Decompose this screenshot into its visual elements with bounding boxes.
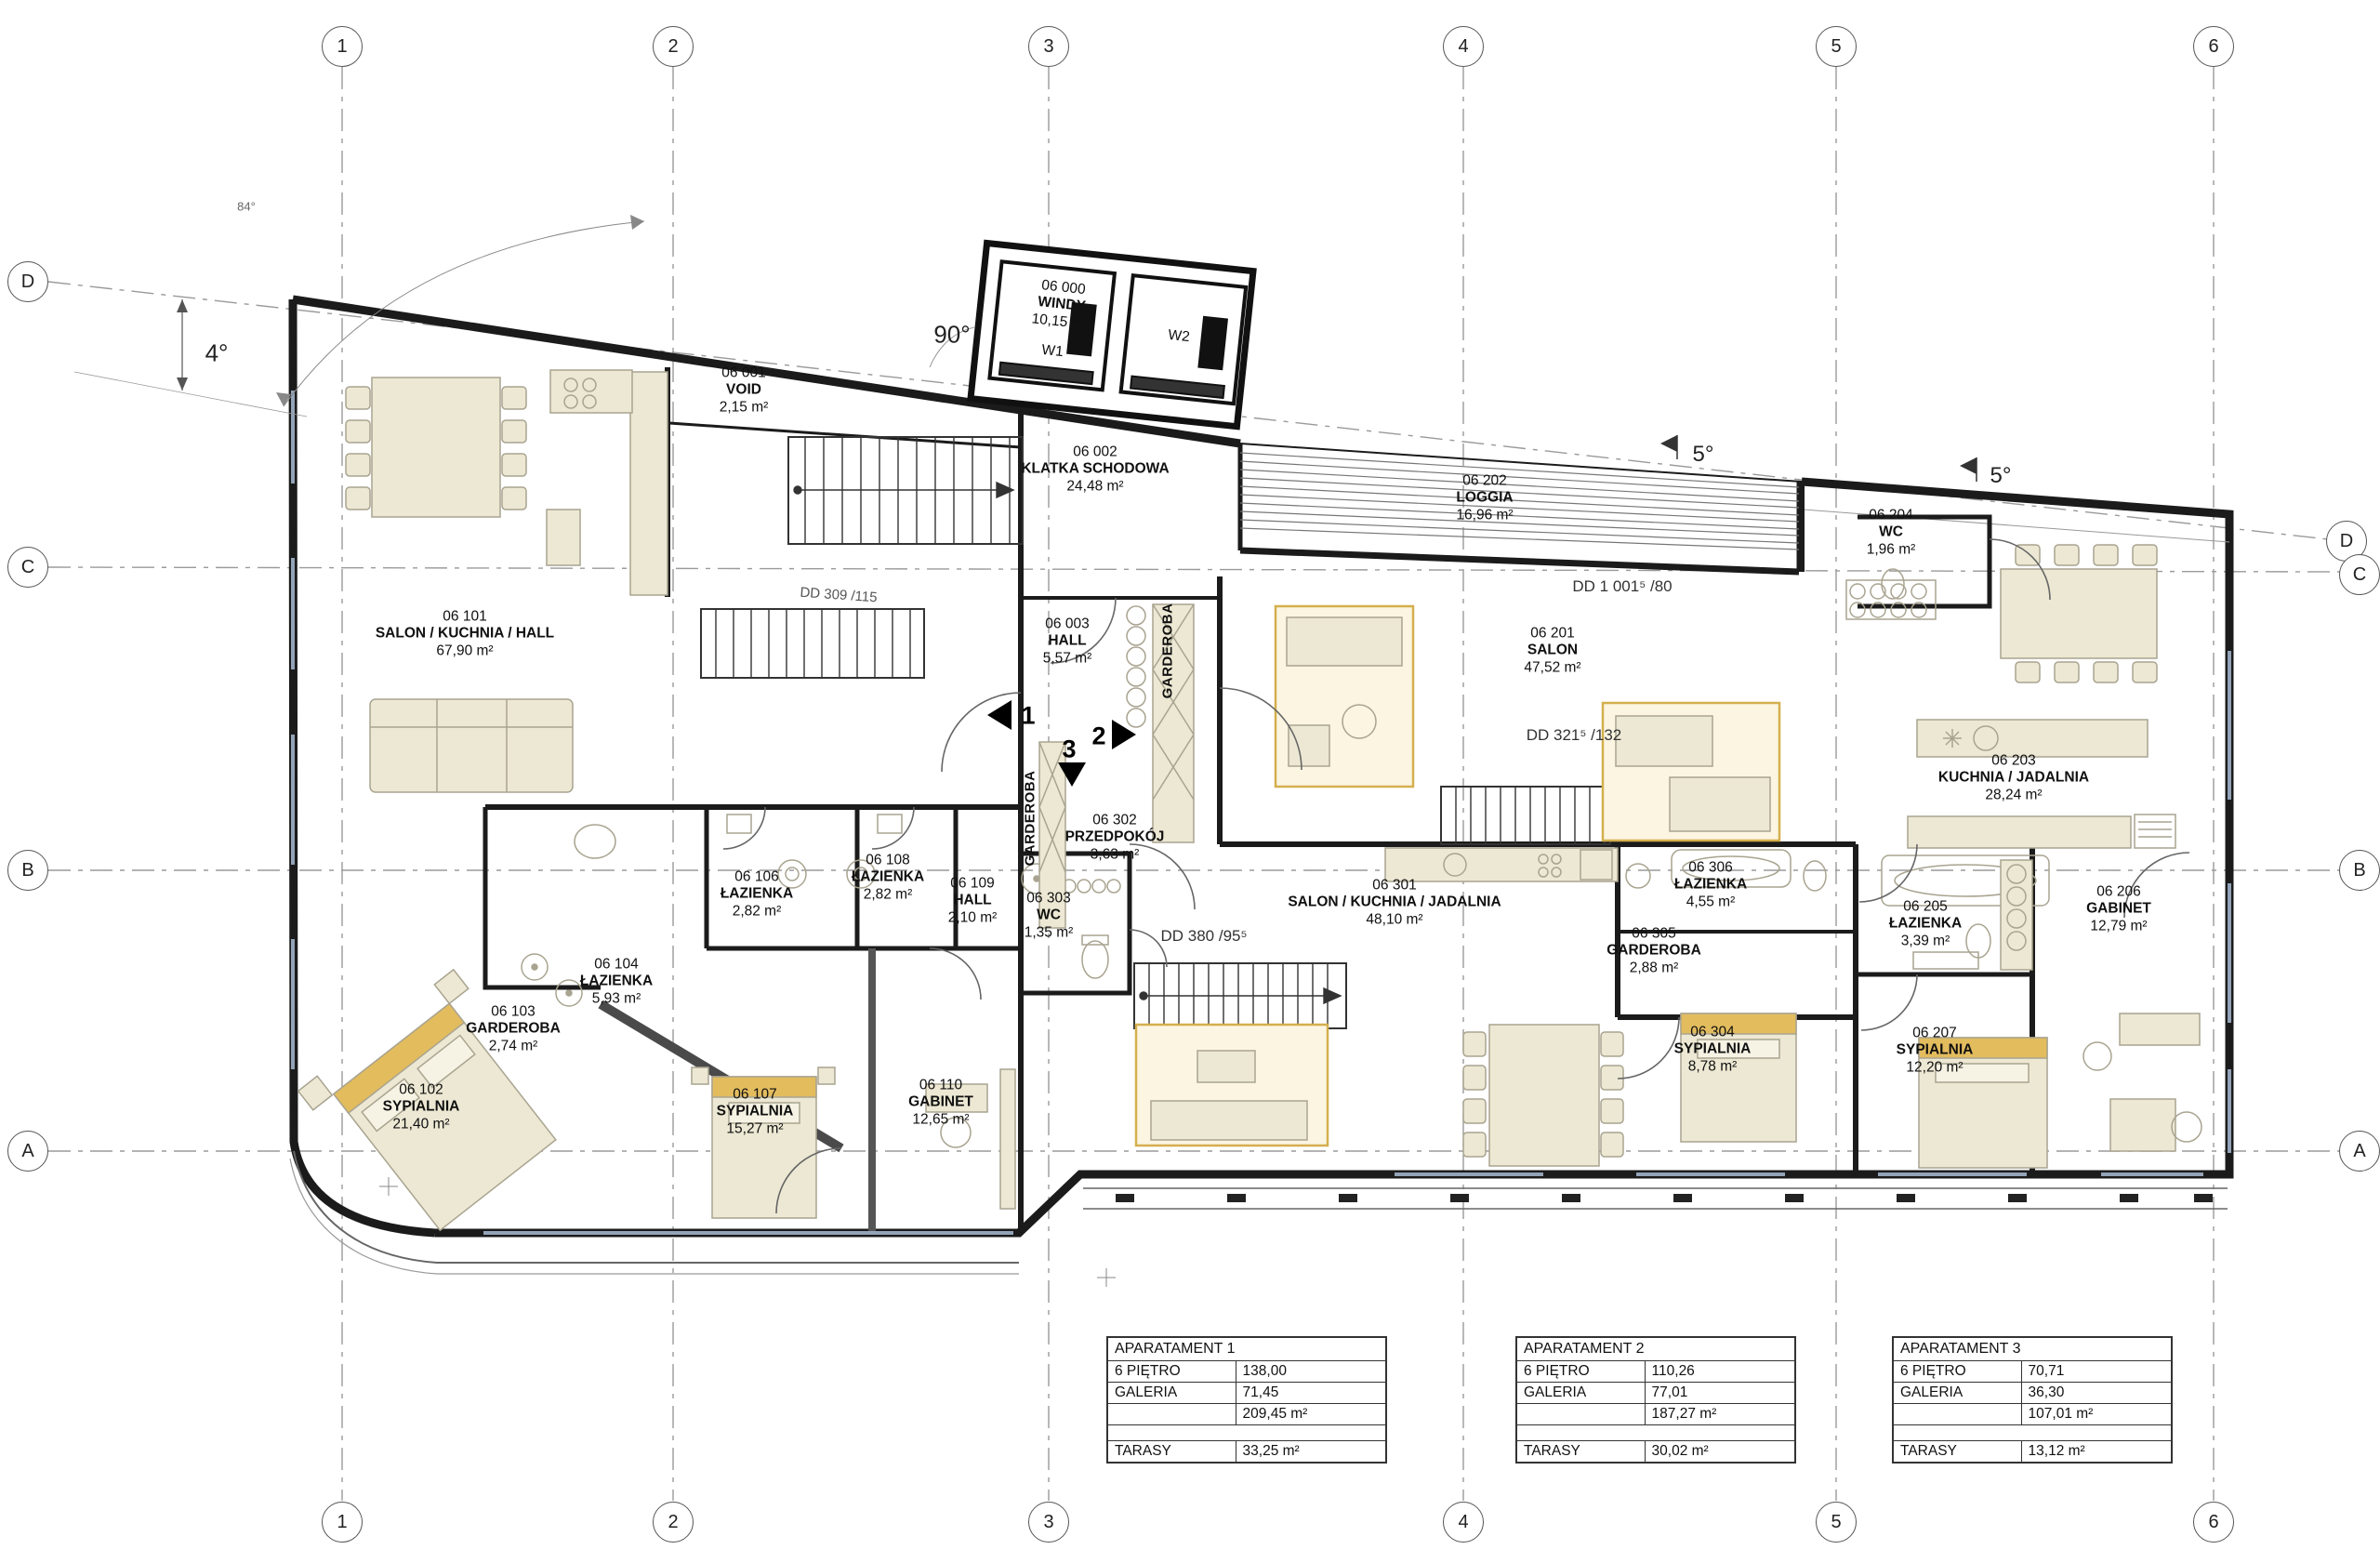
room-label-06-303: 06 303 WC 1,35 m² — [1025, 891, 1074, 942]
elevator-cab-w2-label: W2 — [1167, 327, 1190, 346]
apartment-table-3: APARATAMENT 3 6 PIĘTRO70,71 GALERIA36,30… — [1892, 1336, 2173, 1464]
room-number: 06 207 — [1897, 1026, 1974, 1042]
room-number: 06 104 — [580, 957, 653, 974]
room-label-06-205: 06 205 ŁAZIENKA 3,39 m² — [1889, 899, 1962, 950]
grid-bubble-col3-bottom: 3 — [1028, 1502, 1069, 1543]
room-name: SALON — [1524, 642, 1580, 659]
loggia-hatch — [1240, 453, 1799, 550]
room-area: 2,82 m² — [721, 903, 793, 920]
room-area: 4,55 m² — [1674, 894, 1747, 910]
grid-bubble-col2-bottom: 2 — [653, 1502, 694, 1543]
room-number: 06 001 — [720, 365, 769, 382]
table-cell: 6 PIĘTRO — [1894, 1361, 2022, 1383]
angle-5-label-b: 5° — [1990, 463, 2012, 489]
room-label-06-003: 06 003 HALL 5,57 m² — [1043, 616, 1092, 668]
section-arrow-down-icon — [1058, 762, 1086, 787]
room-number: 06 202 — [1456, 473, 1513, 490]
table-cell: GALERIA — [1108, 1383, 1236, 1404]
floor-plan-canvas: 06 001 VOID 2,15 m² 06 002 KLATKA SCHODO… — [0, 0, 2380, 1563]
room-label-06-001: 06 001 VOID 2,15 m² — [720, 365, 769, 417]
grid-bubble-col6-top: 6 — [2193, 26, 2234, 67]
room-number: 06 301 — [1288, 878, 1501, 894]
room-area: 3,39 m² — [1889, 933, 1962, 949]
room-number: 06 108 — [852, 853, 924, 869]
table-cell: TARASY — [1894, 1441, 2022, 1463]
grid-bubble-col1-bottom: 1 — [322, 1502, 363, 1543]
room-label-06-302: 06 302 PRZEDPOKÓJ 3,63 m² — [1065, 813, 1165, 864]
room-name: GABINET — [2086, 901, 2151, 918]
room-name: ŁAZIENKA — [580, 974, 653, 990]
room-label-06-107: 06 107 SYPIALNIA 15,27 m² — [717, 1087, 794, 1138]
room-area: 2,88 m² — [1606, 960, 1701, 976]
room-area: 15,27 m² — [717, 1120, 794, 1137]
apartment-table-title: APARATAMENT 3 — [1894, 1338, 2172, 1361]
room-label-06-106: 06 106 ŁAZIENKA 2,82 m² — [721, 869, 793, 921]
room-name: ŁAZIENKA — [1674, 877, 1747, 894]
room-name: ŁAZIENKA — [852, 869, 924, 886]
table-cell: 13,12 m² — [2021, 1441, 2171, 1463]
room-area: 2,82 m² — [852, 886, 924, 903]
table-cell: 71,45 — [1236, 1383, 1385, 1404]
room-number: 06 106 — [721, 869, 793, 886]
room-area: 12,79 m² — [2086, 918, 2151, 934]
table-cell: 187,27 m² — [1645, 1404, 1794, 1425]
table-cell: 36,30 — [2021, 1383, 2171, 1404]
table-cell — [1894, 1404, 2022, 1425]
room-name: KUCHNIA / JADALNIA — [1938, 770, 2089, 787]
room-number: 06 206 — [2086, 884, 2151, 901]
angle-90-label: 90° — [933, 321, 970, 350]
angle-84-label: 84° — [237, 200, 256, 214]
room-label-06-305: 06 305 GARDEROBA 2,88 m² — [1606, 926, 1701, 977]
grid-bubble-rowA-left: A — [7, 1131, 48, 1172]
room-number: 06 303 — [1025, 891, 1074, 907]
table-cell: 138,00 — [1236, 1361, 1385, 1383]
table-cell — [1517, 1404, 1646, 1425]
grid-bubble-rowC-right: C — [2339, 554, 2380, 595]
grid-bubble-col4-top: 4 — [1443, 26, 1484, 67]
section-arrow-right-icon — [1112, 720, 1136, 749]
table-cell: TARASY — [1108, 1441, 1236, 1463]
section-arrow-left-icon — [987, 700, 1011, 730]
room-label-06-201: 06 201 SALON 47,52 m² — [1524, 626, 1580, 677]
room-name: PRZEDPOKÓJ — [1065, 829, 1165, 846]
grid-bubble-rowC-left: C — [7, 547, 48, 588]
angle-4-label: 4° — [205, 339, 229, 368]
table-spacer — [1108, 1425, 1386, 1441]
room-number: 06 103 — [466, 1004, 561, 1021]
room-name: KLATKA SCHODOWA — [1021, 461, 1169, 478]
room-label-06-101: 06 101 SALON / KUCHNIA / HALL 67,90 m² — [376, 609, 554, 660]
room-area: 16,96 m² — [1456, 507, 1513, 523]
room-name: LOGGIA — [1456, 490, 1513, 507]
elevator-cab-w1-label: W1 — [1040, 342, 1064, 361]
room-name: WC — [1867, 524, 1916, 541]
table-cell: TARASY — [1517, 1441, 1646, 1463]
table-cell: 107,01 m² — [2021, 1404, 2171, 1425]
room-label-06-203: 06 203 KUCHNIA / JADALNIA 28,24 m² — [1938, 753, 2089, 804]
room-label-06-104: 06 104 ŁAZIENKA 5,93 m² — [580, 957, 653, 1008]
table-cell: GALERIA — [1894, 1383, 2022, 1404]
room-label-06-206: 06 206 GABINET 12,79 m² — [2086, 884, 2151, 935]
room-name: SYPIALNIA — [1897, 1042, 1974, 1059]
room-name: ŁAZIENKA — [721, 886, 793, 903]
grid-bubble-col6-bottom: 6 — [2193, 1502, 2234, 1543]
room-area: 48,10 m² — [1288, 911, 1501, 928]
apartment-table-1: APARATAMENT 1 6 PIĘTRO138,00 GALERIA71,4… — [1106, 1336, 1387, 1464]
room-area: 24,48 m² — [1021, 478, 1169, 495]
room-area: 12,65 m² — [908, 1111, 973, 1128]
room-area: 5,57 m² — [1043, 650, 1092, 667]
room-label-06-110: 06 110 GABINET 12,65 m² — [908, 1078, 973, 1129]
room-number: 06 109 — [948, 876, 998, 893]
room-number: 06 110 — [908, 1078, 973, 1094]
table-spacer — [1894, 1425, 2172, 1441]
table-cell: 6 PIĘTRO — [1517, 1361, 1646, 1383]
room-area: 3,63 m² — [1065, 846, 1165, 863]
room-label-06-304: 06 304 SYPIALNIA 8,78 m² — [1674, 1025, 1752, 1076]
grid-bubble-col5-top: 5 — [1816, 26, 1857, 67]
table-cell: 209,45 m² — [1236, 1404, 1385, 1425]
table-spacer — [1517, 1425, 1795, 1441]
room-name: HALL — [948, 893, 998, 909]
table-cell: 70,71 — [2021, 1361, 2171, 1383]
room-area: 2,74 m² — [466, 1038, 561, 1054]
room-name: SYPIALNIA — [1674, 1041, 1752, 1058]
dim-dd-380: DD 380 /95⁵ — [1160, 927, 1247, 946]
room-number: 06 305 — [1606, 926, 1701, 943]
grid-bubble-col5-bottom: 5 — [1816, 1502, 1857, 1543]
room-number: 06 203 — [1938, 753, 2089, 770]
garderoba-vertical-label-1: GARDEROBA — [1160, 603, 1176, 699]
table-cell: 110,26 — [1645, 1361, 1794, 1383]
room-area: 47,52 m² — [1524, 659, 1580, 676]
room-area: 5,93 m² — [580, 990, 653, 1007]
room-number: 06 107 — [717, 1087, 794, 1104]
dim-dd-loggia: DD 1 001⁵ /80 — [1572, 577, 1672, 596]
room-area: 21,40 m² — [383, 1116, 460, 1133]
table-cell: 30,02 m² — [1645, 1441, 1794, 1463]
garderoba-vertical-label-2: GARDEROBA — [1023, 771, 1038, 867]
apartment-table-title: APARATAMENT 2 — [1517, 1338, 1795, 1361]
section-2-label: 2 — [1091, 722, 1105, 751]
room-label-06-204: 06 204 WC 1,96 m² — [1867, 508, 1916, 559]
room-area: 2,10 m² — [948, 909, 998, 926]
table-cell — [1108, 1404, 1236, 1425]
grid-bubble-rowB-left: B — [7, 850, 48, 891]
table-cell: 77,01 — [1645, 1383, 1794, 1404]
room-name: HALL — [1043, 633, 1092, 650]
room-label-windy: 06 000 WINDY 10,15 m² — [1031, 277, 1093, 334]
room-label-06-103: 06 103 GARDEROBA 2,74 m² — [466, 1004, 561, 1055]
elevator-block — [971, 244, 1253, 427]
room-number: 06 204 — [1867, 508, 1916, 524]
room-label-06-306: 06 306 ŁAZIENKA 4,55 m² — [1674, 860, 1747, 911]
room-label-06-207: 06 207 SYPIALNIA 12,20 m² — [1897, 1026, 1974, 1077]
room-area: 8,78 m² — [1674, 1058, 1752, 1075]
room-number: 06 205 — [1889, 899, 1962, 916]
table-cell: 6 PIĘTRO — [1108, 1361, 1236, 1383]
room-number: 06 201 — [1524, 626, 1580, 642]
room-name: WC — [1025, 907, 1074, 924]
room-number: 06 304 — [1674, 1025, 1752, 1041]
room-number: 06 302 — [1065, 813, 1165, 829]
grid-bubble-col1-top: 1 — [322, 26, 363, 67]
room-area: 1,96 m² — [1867, 541, 1916, 558]
terrace-railings — [290, 1151, 2228, 1274]
apartment-table-2: APARATAMENT 2 6 PIĘTRO110,26 GALERIA77,0… — [1515, 1336, 1796, 1464]
room-number: 06 003 — [1043, 616, 1092, 633]
room-label-06-108: 06 108 ŁAZIENKA 2,82 m² — [852, 853, 924, 904]
room-name: SYPIALNIA — [717, 1104, 794, 1120]
room-name: ŁAZIENKA — [1889, 916, 1962, 933]
room-name: SALON / KUCHNIA / HALL — [376, 626, 554, 642]
angle-5-label-a: 5° — [1693, 442, 1714, 468]
room-label-06-109: 06 109 HALL 2,10 m² — [948, 876, 998, 927]
grid-bubble-col4-bottom: 4 — [1443, 1502, 1484, 1543]
dim-dd-321: DD 321⁵ /132 — [1527, 726, 1622, 745]
grid-bubble-rowD-left: D — [7, 261, 48, 302]
room-area: 1,35 m² — [1025, 924, 1074, 941]
room-number: 06 306 — [1674, 860, 1747, 877]
room-name: SYPIALNIA — [383, 1099, 460, 1116]
room-area: 67,90 m² — [376, 642, 554, 659]
room-area: 2,15 m² — [720, 399, 769, 416]
room-label-06-002: 06 002 KLATKA SCHODOWA 24,48 m² — [1021, 444, 1169, 496]
room-area: 12,20 m² — [1897, 1059, 1974, 1076]
room-name: VOID — [720, 382, 769, 399]
room-number: 06 101 — [376, 609, 554, 626]
table-cell: GALERIA — [1517, 1383, 1646, 1404]
room-area: 28,24 m² — [1938, 787, 2089, 803]
room-number: 06 002 — [1021, 444, 1169, 461]
room-name: GARDEROBA — [466, 1021, 561, 1038]
room-number: 06 102 — [383, 1082, 460, 1099]
room-name: GABINET — [908, 1094, 973, 1111]
room-name: SALON / KUCHNIA / JADALNIA — [1288, 894, 1501, 911]
room-label-06-202: 06 202 LOGGIA 16,96 m² — [1456, 473, 1513, 524]
grid-bubble-rowA-right: A — [2339, 1131, 2380, 1172]
grid-bubble-rowB-right: B — [2339, 850, 2380, 891]
room-label-06-301: 06 301 SALON / KUCHNIA / JADALNIA 48,10 … — [1288, 878, 1501, 929]
grid-bubble-col3-top: 3 — [1028, 26, 1069, 67]
apartment-table-title: APARATAMENT 1 — [1108, 1338, 1386, 1361]
room-label-06-102: 06 102 SYPIALNIA 21,40 m² — [383, 1082, 460, 1133]
grid-bubble-col2-top: 2 — [653, 26, 694, 67]
section-1-label: 1 — [1021, 702, 1035, 731]
section-3-label: 3 — [1062, 735, 1076, 764]
room-name: GARDEROBA — [1606, 943, 1701, 960]
table-cell: 33,25 m² — [1236, 1441, 1385, 1463]
